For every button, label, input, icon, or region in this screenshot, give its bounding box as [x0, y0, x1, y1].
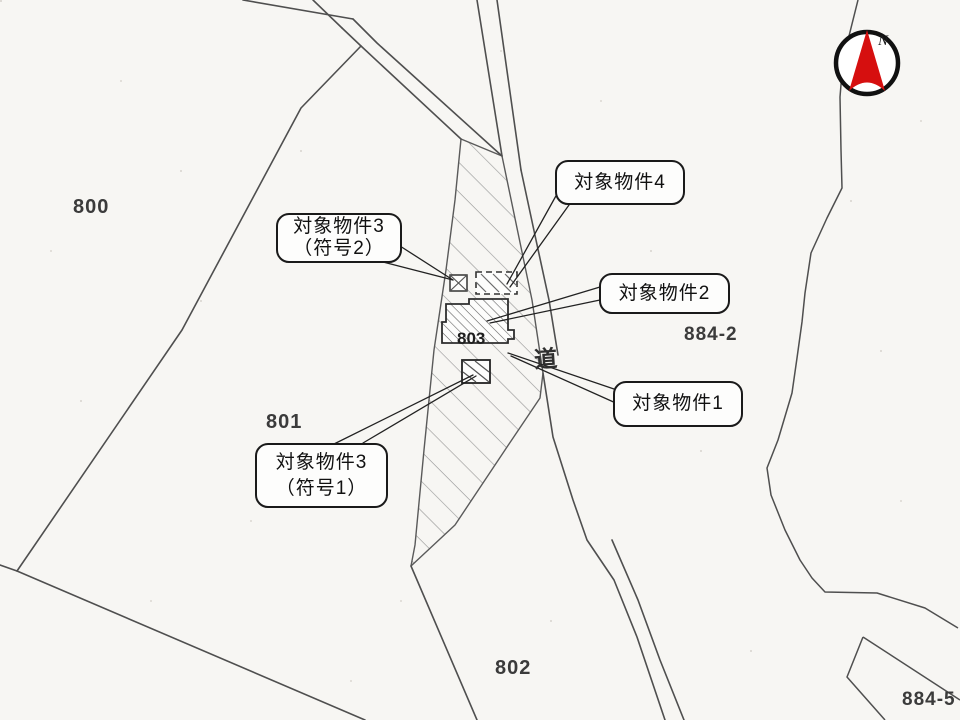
compass-north-label: N	[878, 33, 888, 50]
parcel-label-801: 801	[266, 411, 302, 434]
parcel-label-802: 802	[495, 657, 531, 680]
map-canvas	[0, 0, 960, 720]
parcel-label-800: 800	[73, 196, 109, 219]
building-sign2	[450, 275, 467, 291]
callout-target-2-text: 対象物件2	[619, 282, 711, 306]
callout-target-3-sign1: 対象物件3 （符号1）	[255, 443, 388, 508]
callout-target-3-sign1-text: 対象物件3	[276, 450, 368, 476]
compass-icon	[836, 30, 898, 94]
callout-target-4-text: 対象物件4	[574, 171, 666, 195]
road-label: 道	[533, 339, 558, 375]
callout-target-4: 対象物件4	[555, 160, 685, 205]
parcel-label-884-5: 884-5	[902, 689, 956, 711]
hatched-strip-803	[411, 139, 543, 566]
callout-target-3-sign2: 対象物件3 （符号2）	[276, 213, 402, 263]
parcel-label-884-2: 884-2	[684, 324, 738, 346]
building-sign1	[462, 360, 490, 383]
callout-target-1: 対象物件1	[613, 381, 743, 427]
callout-target-2: 対象物件2	[599, 273, 730, 314]
callout-target-1-text: 対象物件1	[632, 392, 724, 416]
parcel-boundary-lines	[0, 0, 684, 720]
callout-target-3-sign2-text: 対象物件3	[293, 216, 385, 238]
building-target4-dashed	[476, 272, 517, 294]
cadastral-map: 800 801 802 803 884-2 884-5 道 対象物件4 対象物件…	[0, 0, 960, 720]
parcel-label-803: 803	[457, 329, 485, 349]
